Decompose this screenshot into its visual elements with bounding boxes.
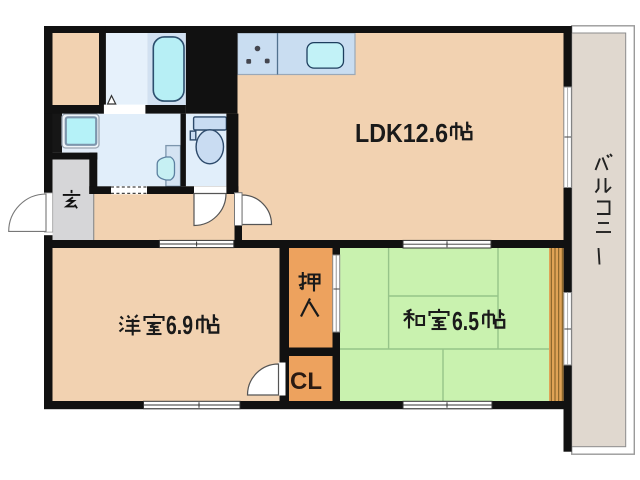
svg-text:6.9: 6.9 [166, 310, 193, 340]
svg-text:LDK12.6: LDK12.6 [355, 118, 448, 148]
svg-text:6.5: 6.5 [452, 306, 479, 336]
svg-text:CL: CL [290, 368, 322, 395]
